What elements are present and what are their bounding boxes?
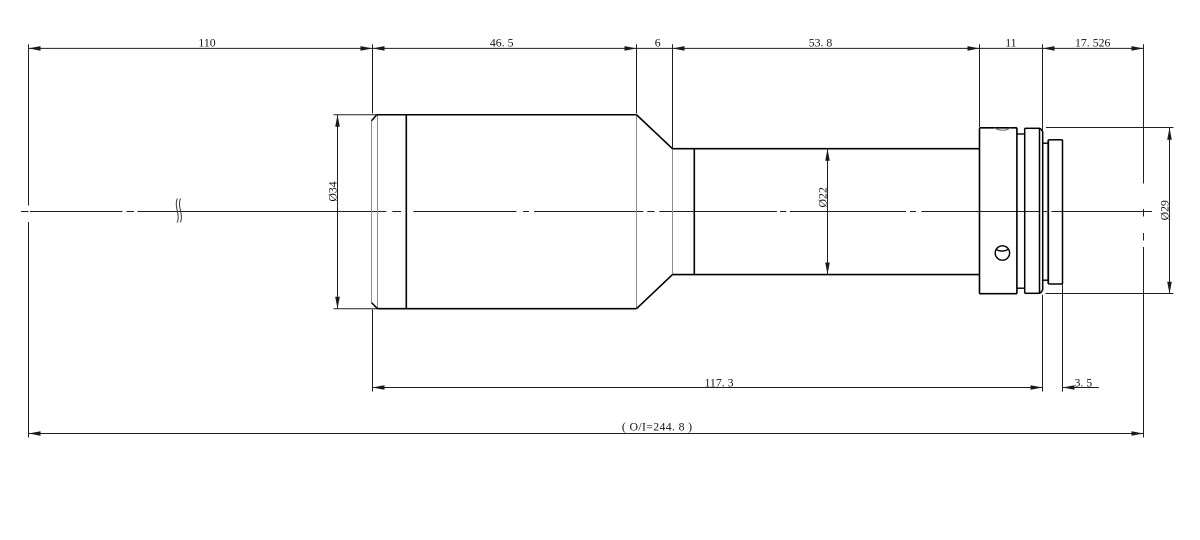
svg-text:3. 5: 3. 5 bbox=[1074, 375, 1092, 389]
svg-text:53. 8: 53. 8 bbox=[809, 35, 833, 49]
svg-text:6: 6 bbox=[655, 35, 661, 49]
svg-text:Ø29: Ø29 bbox=[1157, 200, 1171, 220]
svg-text:117. 3: 117. 3 bbox=[704, 375, 733, 389]
svg-text:11: 11 bbox=[1005, 35, 1016, 49]
svg-text:46. 5: 46. 5 bbox=[490, 35, 514, 49]
svg-text:110: 110 bbox=[198, 35, 215, 49]
svg-text:Ø34: Ø34 bbox=[326, 181, 340, 201]
svg-text:Ø22: Ø22 bbox=[816, 187, 830, 207]
svg-text:17. 526: 17. 526 bbox=[1075, 35, 1110, 49]
svg-text:( O/I=244. 8 ): ( O/I=244. 8 ) bbox=[622, 419, 693, 433]
